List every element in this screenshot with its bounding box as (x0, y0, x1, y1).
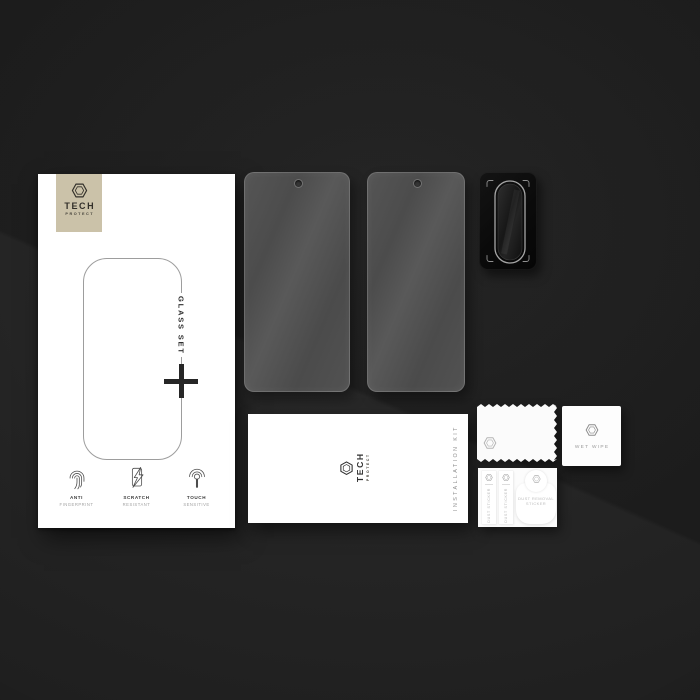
feature-anti-fingerprint: ANTI FINGERPRINT (53, 466, 101, 507)
touch-icon (185, 466, 209, 492)
brand-subname: PROTECT (366, 452, 370, 483)
feature-icons-row: ANTI FINGERPRINT SCRATCH RESISTANT TOU (38, 466, 235, 507)
brand-name: TECH (56, 201, 102, 211)
feature-label-1: SCRATCH (113, 495, 161, 500)
retail-box: TECH PROTECT GLASS SET ANTI FINGERPRINT (38, 174, 235, 528)
phone-lightning-icon (125, 466, 149, 492)
tempered-glass-protector-2 (367, 172, 465, 392)
kit-brand-logo: TECH PROTECT (340, 452, 370, 483)
brand-hexagon-icon (502, 474, 510, 481)
plus-mark (164, 364, 198, 398)
dust-sticker-label: DUST STICKER (487, 488, 491, 523)
camera-punch-hole (413, 179, 422, 188)
tempered-glass-protector-1 (244, 172, 350, 392)
brand-badge: TECH PROTECT (56, 174, 102, 232)
microfiber-cloth (477, 404, 557, 462)
dust-sticker-label: DUST STICKER (504, 488, 508, 523)
camera-punch-hole (294, 179, 303, 188)
sticker-text: DUST REMOVAL STICKER (516, 496, 556, 507)
wet-wipe-label: WET WIPE (562, 445, 621, 450)
dust-sticker-strip: DUST STICKER (499, 471, 513, 524)
camera-lens-protector (479, 172, 537, 270)
brand-name: TECH (355, 452, 365, 483)
sticker-top-circle (525, 470, 547, 492)
product-photo-stage: TECH PROTECT GLASS SET ANTI FINGERPRINT (0, 0, 700, 700)
feature-scratch-resistant: SCRATCH RESISTANT (113, 466, 161, 507)
brand-subname: PROTECT (56, 212, 102, 216)
brand-hexagon-icon (485, 474, 493, 481)
feature-label-1: TOUCH (173, 495, 221, 500)
feature-label-2: FINGERPRINT (53, 502, 101, 507)
feature-label-1: ANTI (53, 495, 101, 500)
feature-label-2: RESISTANT (113, 502, 161, 507)
wet-wipe-packet: WET WIPE (562, 406, 621, 466)
brand-hexagon-icon (585, 424, 599, 436)
divider (485, 484, 493, 485)
brand-hexagon-icon (71, 183, 88, 198)
dust-sticker-card: DUST STICKER DUST STICKER DUST REMOVAL S… (478, 468, 557, 527)
fingerprint-icon (65, 466, 89, 492)
lens-protector-graphic (479, 172, 537, 270)
feature-touch-sensitive: TOUCH SENSITIVE (173, 466, 221, 507)
dust-sticker-strip: DUST STICKER (482, 471, 496, 524)
brand-hexagon-icon (532, 475, 541, 483)
phone-outline-graphic (83, 258, 182, 460)
glass-set-label: GLASS SET (174, 293, 188, 357)
sticker-line-2: STICKER (516, 501, 556, 506)
feature-label-2: SENSITIVE (173, 502, 221, 507)
brand-hexagon-icon (340, 461, 353, 476)
installation-kit-box: TECH PROTECT INSTALLATION KIT (248, 414, 468, 523)
divider (502, 484, 510, 485)
installation-kit-label: INSTALLATION KIT (450, 414, 462, 523)
dust-removal-sticker: DUST REMOVAL STICKER (516, 470, 556, 525)
